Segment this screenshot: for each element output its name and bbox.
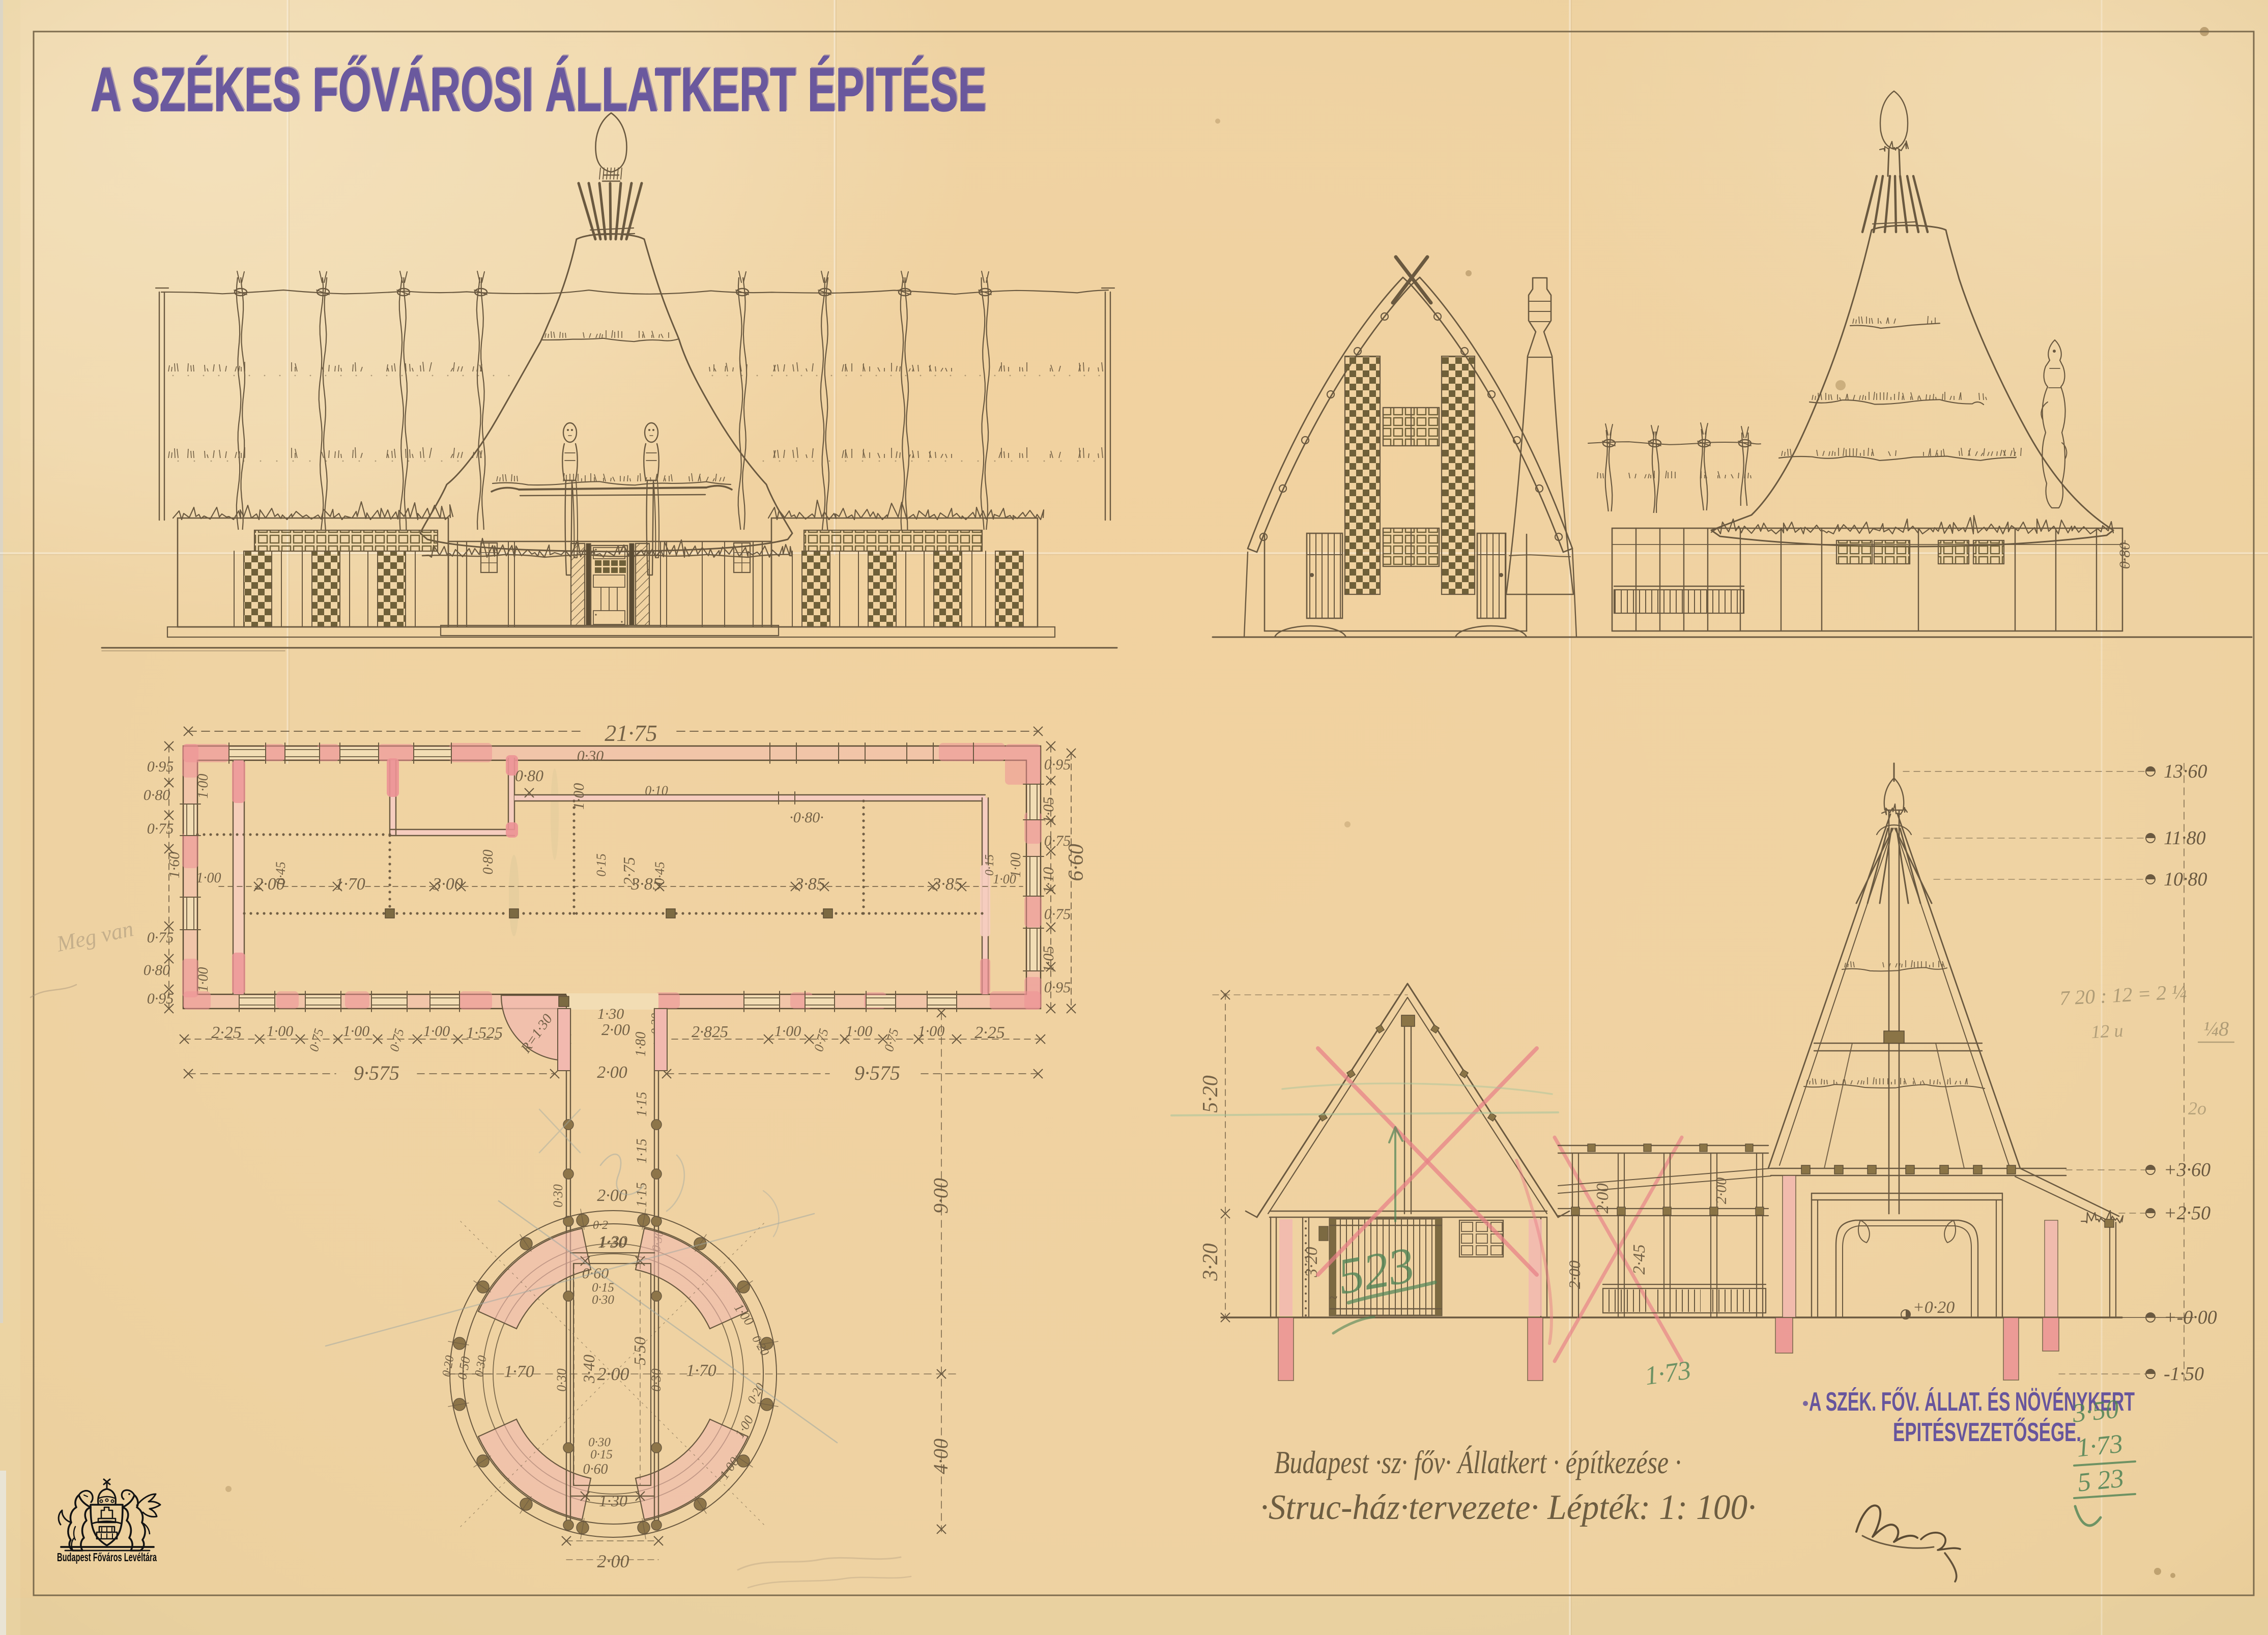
svg-text:1·00: 1·00 xyxy=(846,1023,873,1040)
svg-text:1·00: 1·00 xyxy=(196,870,221,886)
svg-text:2·45: 2·45 xyxy=(1630,1244,1649,1275)
svg-text:1·00: 1·00 xyxy=(267,1023,294,1040)
svg-text:2o: 2o xyxy=(2188,1098,2206,1118)
svg-text:0·30: 0·30 xyxy=(649,1368,664,1392)
svg-text:1·60: 1·60 xyxy=(166,852,183,879)
svg-text:1·30: 1·30 xyxy=(599,1491,627,1510)
svg-text:9·575: 9·575 xyxy=(854,1062,900,1084)
svg-text:Budapest ·sz· főv· Állatkert ·: Budapest ·sz· főv· Állatkert · építkezés… xyxy=(1274,1444,1681,1480)
svg-text:2·25: 2·25 xyxy=(211,1023,242,1042)
svg-text:0·15: 0·15 xyxy=(592,1281,614,1295)
svg-text:0·75: 0·75 xyxy=(1044,906,1071,923)
svg-text:+2·50: +2·50 xyxy=(2164,1202,2210,1224)
svg-text:~: ~ xyxy=(1329,1289,1337,1306)
svg-text:12 u: 12 u xyxy=(2090,1020,2123,1042)
svg-text:¼8: ¼8 xyxy=(2203,1017,2229,1040)
svg-text:0·60: 0·60 xyxy=(583,1461,608,1477)
svg-text:1·00: 1·00 xyxy=(195,774,211,799)
svg-text:A SZÉKES FŐVÁROSI ÁLLATKERT ÉP: A SZÉKES FŐVÁROSI ÁLLATKERT ÉPITÉSE xyxy=(92,54,987,123)
svg-text:10·80: 10·80 xyxy=(2164,869,2207,890)
svg-text:·Struc-ház·tervezete· Lépték:: ·Struc-ház·tervezete· Lépték: 1: 100· xyxy=(1260,1488,1756,1527)
svg-text:0·30: 0·30 xyxy=(592,1293,614,1307)
svg-text:1·00: 1·00 xyxy=(570,783,587,810)
svg-text:1·05: 1·05 xyxy=(1040,797,1057,824)
svg-text:0·80: 0·80 xyxy=(143,962,170,979)
svg-text:3·20: 3·20 xyxy=(1199,1243,1222,1281)
svg-text:ÉPITÉSVEZETŐSÉGE.: ÉPITÉSVEZETŐSÉGE. xyxy=(1893,1417,2081,1447)
svg-text:1·00: 1·00 xyxy=(993,872,1016,886)
svg-text:+3·60: +3·60 xyxy=(2164,1159,2210,1181)
svg-text:1·00: 1·00 xyxy=(774,1023,801,1040)
svg-text:2·00: 2·00 xyxy=(1593,1183,1612,1214)
svg-text:Budapest Főváros Levéltára: Budapest Főváros Levéltára xyxy=(57,1551,157,1564)
svg-text:0·45: 0·45 xyxy=(652,862,667,885)
svg-text:4·00: 4·00 xyxy=(929,1439,952,1474)
svg-text:2·825: 2·825 xyxy=(692,1022,728,1041)
svg-text:0·95: 0·95 xyxy=(147,758,174,775)
svg-text:0·30: 0·30 xyxy=(554,1368,569,1392)
svg-text:1·525: 1·525 xyxy=(466,1023,503,1042)
svg-text:5·20: 5·20 xyxy=(1199,1075,1222,1113)
svg-text:+-0·00: +-0·00 xyxy=(2164,1307,2217,1328)
svg-text:0·15: 0·15 xyxy=(590,1448,613,1461)
svg-text:2·00: 2·00 xyxy=(597,1186,627,1205)
svg-text:1·70: 1·70 xyxy=(504,1362,534,1381)
svg-text:2·75: 2·75 xyxy=(620,857,638,885)
svg-text:13·60: 13·60 xyxy=(2164,761,2207,782)
svg-text:1·00: 1·00 xyxy=(918,1023,945,1040)
svg-text:2·00: 2·00 xyxy=(1713,1178,1730,1204)
svg-text:0·30: 0·30 xyxy=(588,1436,611,1449)
svg-text:0·75: 0·75 xyxy=(147,929,174,946)
svg-text:6·60: 6·60 xyxy=(1065,844,1088,881)
svg-text:9·00: 9·00 xyxy=(929,1178,952,1214)
svg-text:+0·20: +0·20 xyxy=(1913,1298,1955,1317)
svg-text:2·25: 2·25 xyxy=(974,1023,1005,1042)
svg-text:1·73: 1·73 xyxy=(2075,1429,2124,1462)
svg-text:1·15: 1·15 xyxy=(634,1139,650,1164)
svg-text:1·15: 1·15 xyxy=(634,1183,650,1208)
svg-text:2·00: 2·00 xyxy=(601,1020,630,1039)
svg-text:3·40: 3·40 xyxy=(580,1355,598,1384)
svg-text:0·15: 0·15 xyxy=(594,853,609,877)
svg-text:·0·80·: ·0·80· xyxy=(789,809,824,826)
svg-text:0·80: 0·80 xyxy=(515,766,543,785)
svg-text:0·30: 0·30 xyxy=(551,1184,565,1208)
svg-text:2·00: 2·00 xyxy=(597,1551,629,1571)
svg-text:1·00: 1·00 xyxy=(343,1023,370,1040)
svg-text:9·575: 9·575 xyxy=(354,1062,399,1084)
svg-text:0·80: 0·80 xyxy=(143,787,170,804)
svg-text:0·95: 0·95 xyxy=(147,990,174,1007)
svg-text:2·00: 2·00 xyxy=(597,1063,627,1082)
svg-text:5 23: 5 23 xyxy=(2076,1464,2125,1497)
svg-text:21·75: 21·75 xyxy=(605,720,657,746)
svg-text:1·30: 1·30 xyxy=(599,1232,627,1250)
svg-text:1·15: 1·15 xyxy=(634,1092,650,1117)
svg-text:1·00: 1·00 xyxy=(423,1023,450,1040)
svg-text:0·15: 0·15 xyxy=(983,854,996,876)
svg-text:1·00: 1·00 xyxy=(195,967,211,992)
svg-text:0·10: 0·10 xyxy=(645,783,668,798)
svg-text:2·00: 2·00 xyxy=(1565,1260,1584,1289)
svg-text:0·30: 0·30 xyxy=(577,748,604,764)
svg-text:1·70: 1·70 xyxy=(686,1361,716,1380)
svg-text:0·75: 0·75 xyxy=(147,820,174,837)
svg-text:0·45: 0·45 xyxy=(273,862,288,885)
svg-text:1·10: 1·10 xyxy=(1040,867,1057,894)
svg-text:3·50: 3·50 xyxy=(2071,1394,2120,1428)
svg-text:0·95: 0·95 xyxy=(1044,756,1071,773)
svg-text:1·80: 1·80 xyxy=(633,1032,649,1057)
svg-text:11·80: 11·80 xyxy=(2164,827,2206,849)
svg-text:0·95: 0·95 xyxy=(1044,979,1071,996)
svg-text:0·80: 0·80 xyxy=(480,850,496,875)
